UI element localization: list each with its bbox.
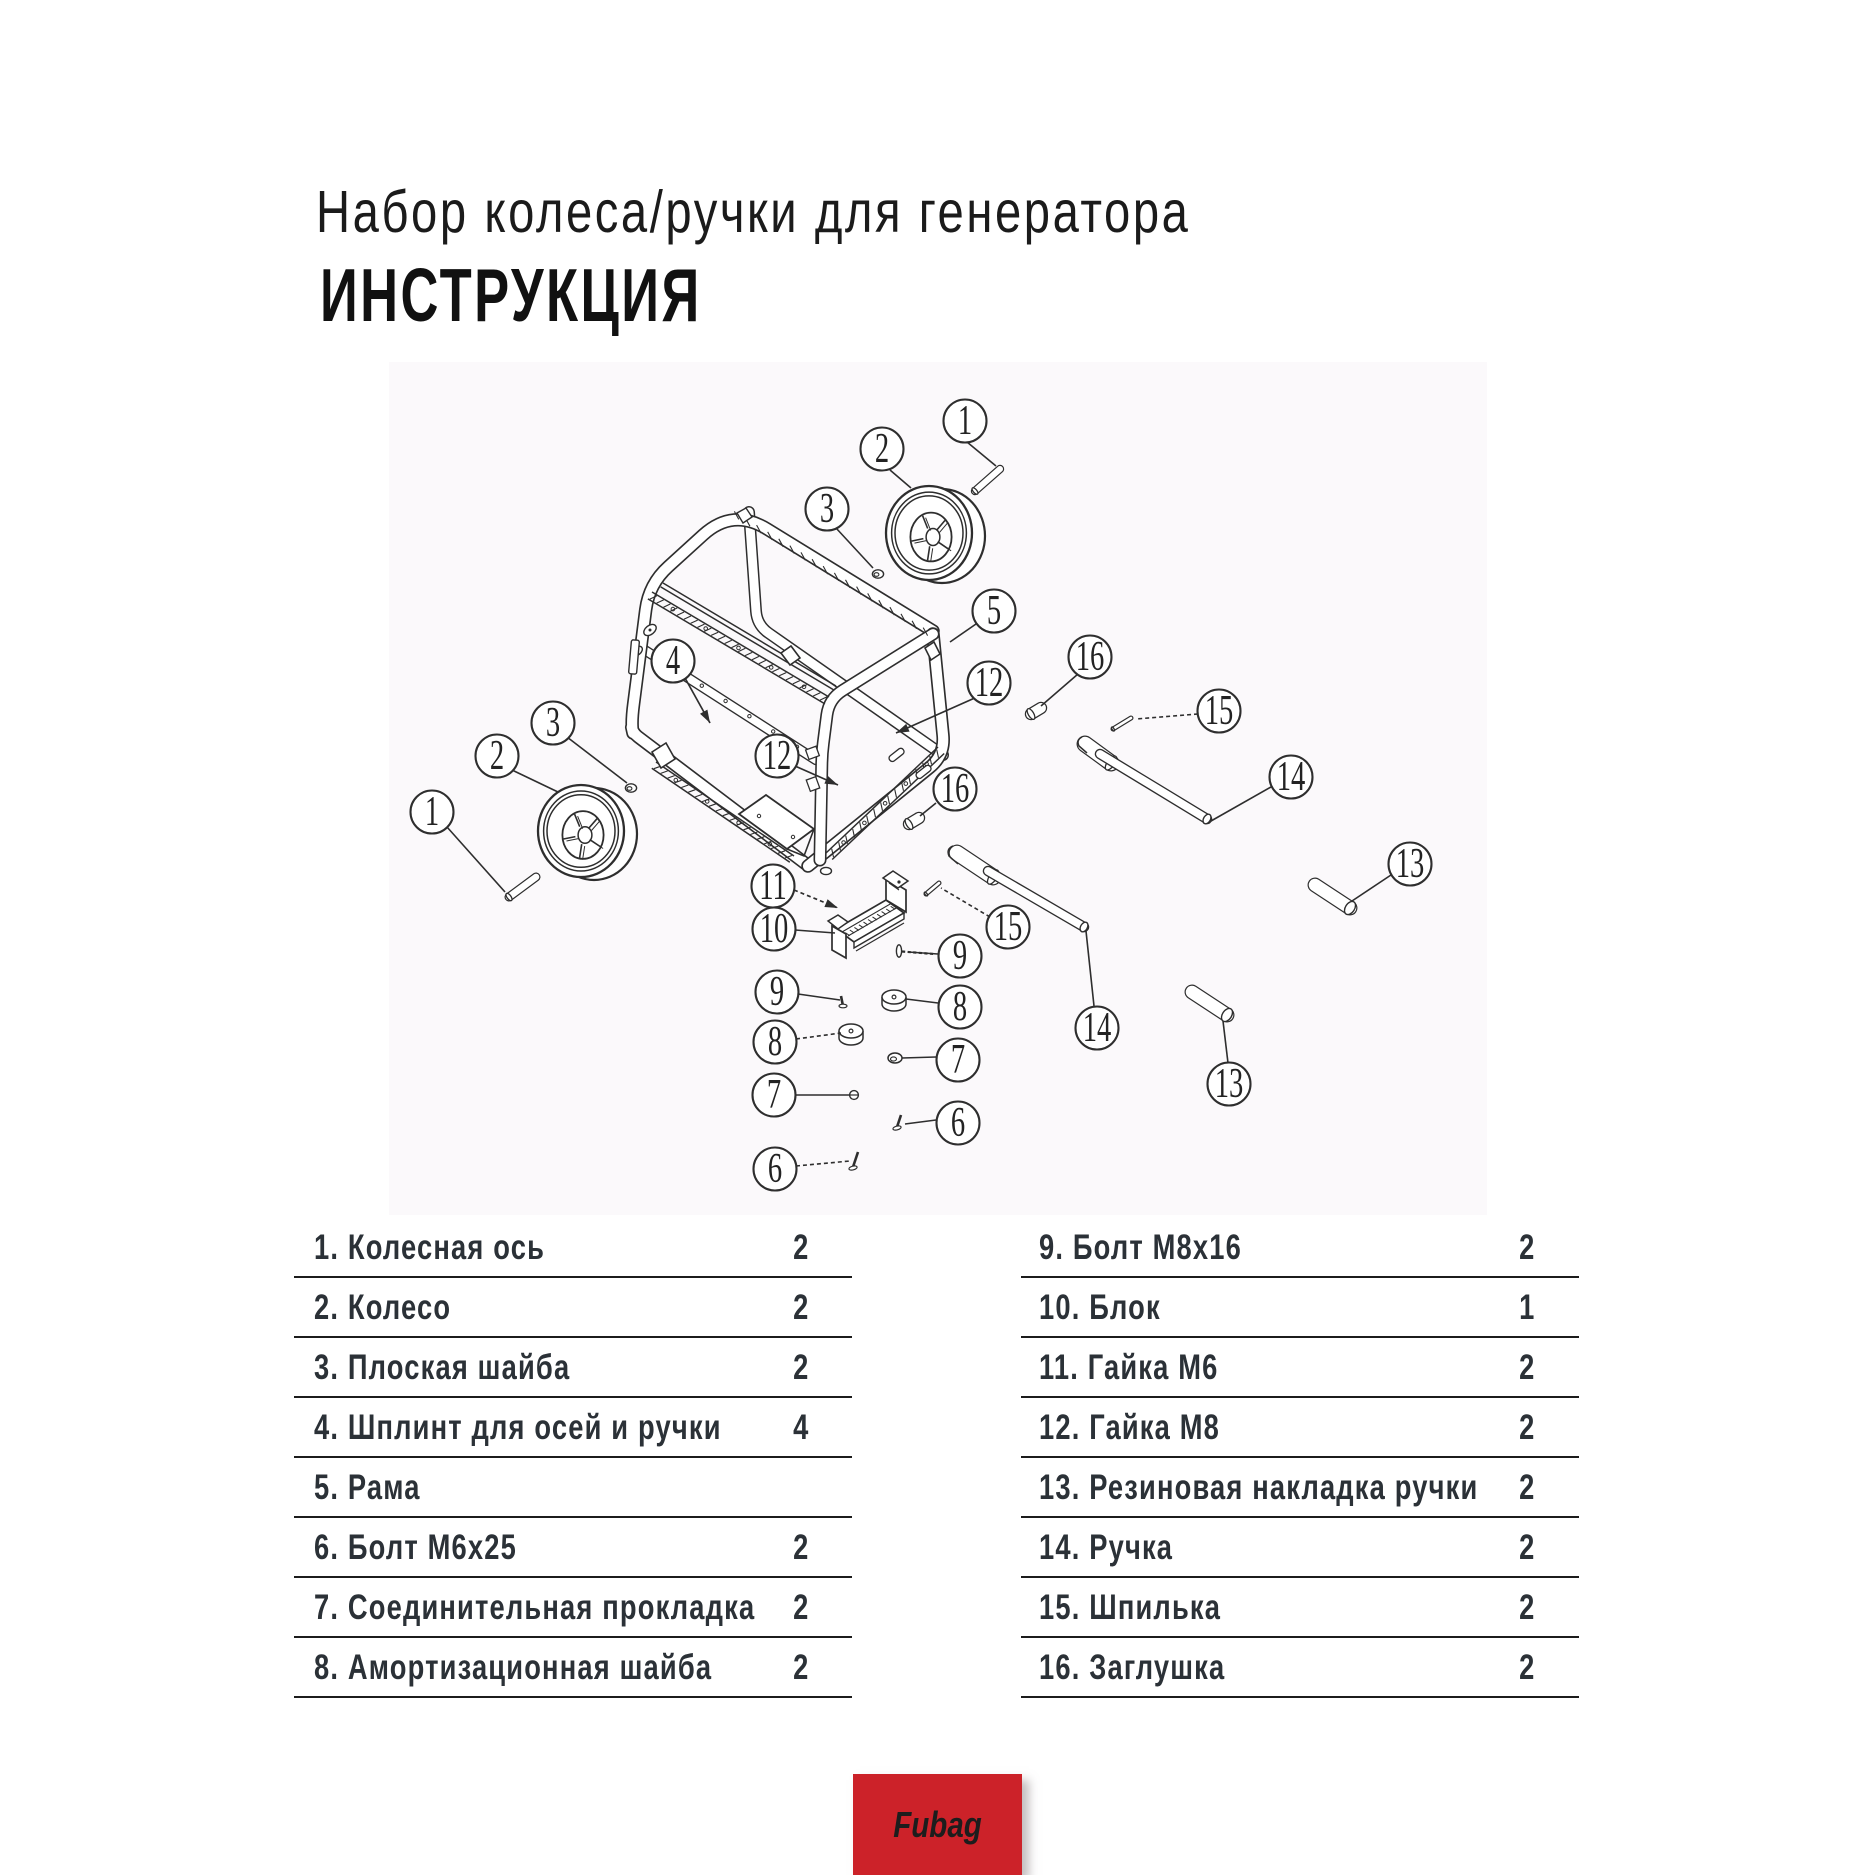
svg-text:3: 3 — [820, 485, 834, 532]
svg-text:5: 5 — [987, 587, 1001, 634]
svg-text:9: 9 — [953, 932, 967, 979]
svg-text:1: 1 — [425, 788, 439, 835]
svg-text:7: 7 — [951, 1036, 965, 1083]
svg-text:12: 12 — [763, 732, 792, 779]
svg-text:8: 8 — [953, 983, 967, 1030]
svg-text:14: 14 — [1083, 1004, 1112, 1051]
svg-text:2: 2 — [490, 732, 504, 779]
svg-text:13: 13 — [1215, 1060, 1244, 1107]
svg-text:9: 9 — [770, 968, 784, 1015]
svg-text:12: 12 — [975, 659, 1004, 706]
svg-text:10: 10 — [760, 905, 789, 952]
svg-text:16: 16 — [941, 765, 970, 812]
svg-text:13: 13 — [1396, 840, 1425, 887]
svg-text:6: 6 — [768, 1145, 782, 1192]
svg-text:6: 6 — [951, 1099, 965, 1146]
svg-text:15: 15 — [1205, 687, 1234, 734]
svg-text:8: 8 — [768, 1018, 782, 1065]
svg-text:2: 2 — [875, 425, 889, 472]
svg-text:3: 3 — [546, 699, 560, 746]
svg-text:4: 4 — [666, 637, 680, 684]
svg-text:11: 11 — [759, 862, 786, 909]
svg-text:7: 7 — [767, 1071, 781, 1118]
svg-text:15: 15 — [994, 903, 1023, 950]
svg-text:14: 14 — [1277, 753, 1306, 800]
svg-text:16: 16 — [1076, 633, 1105, 680]
svg-text:1: 1 — [958, 397, 972, 444]
